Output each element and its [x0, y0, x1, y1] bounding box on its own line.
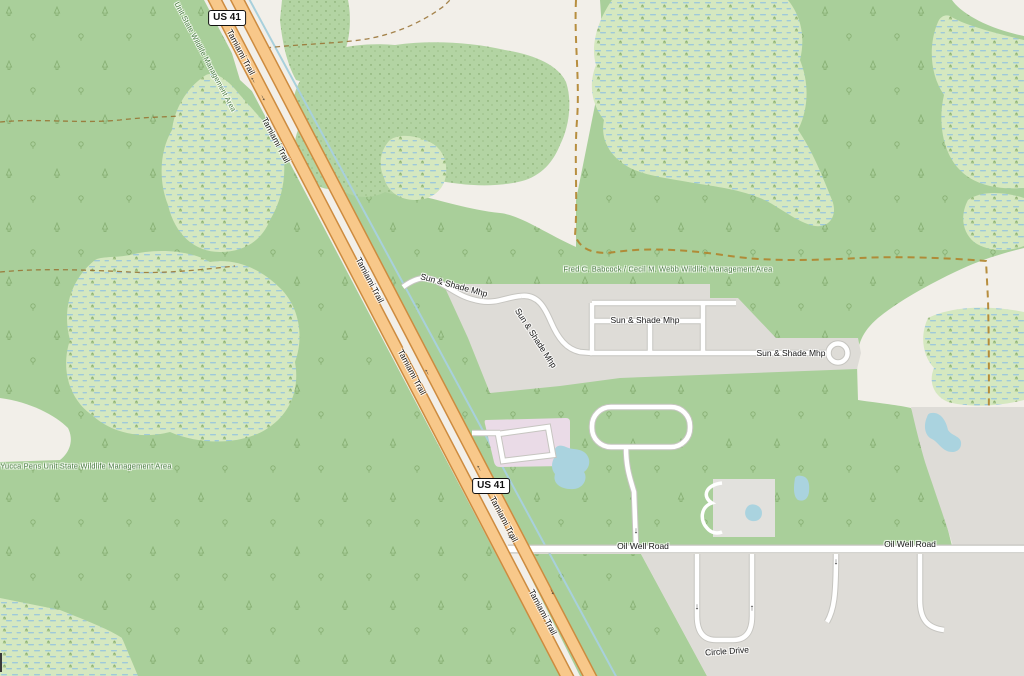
- wetland-east-edge-lower: [923, 308, 1024, 406]
- map-render-layer: [0, 0, 1024, 676]
- edge-artifact: [0, 653, 2, 672]
- map-canvas[interactable]: Tamiami TrailTamiami TrailTamiami TrailT…: [0, 0, 1024, 676]
- yard-area-parking: [713, 479, 775, 537]
- wetland-west-large: [66, 251, 299, 442]
